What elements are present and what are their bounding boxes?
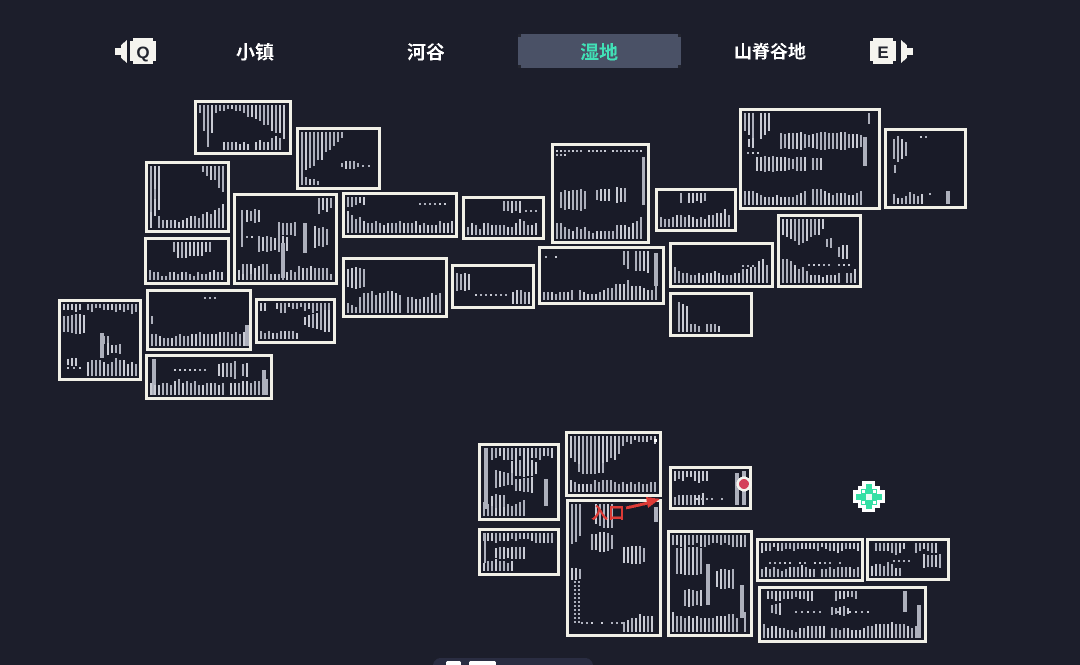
svg-text:E: E [877,43,888,62]
svg-text:Q: Q [136,43,149,62]
